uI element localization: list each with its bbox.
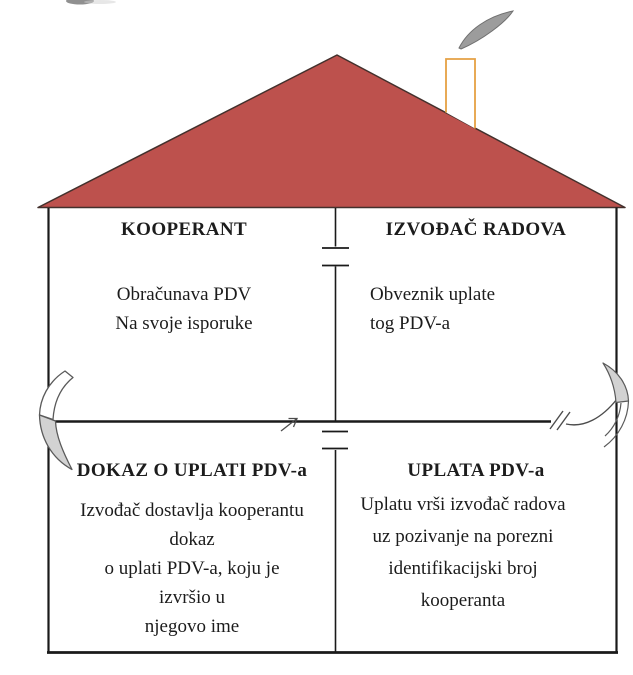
uplata-pdv-line: kooperanta bbox=[336, 585, 590, 617]
roof-icon bbox=[38, 55, 625, 208]
izvodac-radova-line: tog PDV-a bbox=[370, 309, 616, 338]
dokaz-o-uplati-line: dokaz bbox=[49, 525, 335, 554]
izvodac-radova-header: IZVOĐAČ RADOVA bbox=[336, 217, 616, 242]
uplata-pdv-line: identifikacijski broj bbox=[336, 553, 590, 585]
kooperant-header: KOOPERANT bbox=[49, 217, 319, 242]
dokaz-o-uplati-line: njegovo ime bbox=[49, 612, 335, 641]
uplata-pdv-line: Uplatu vrši izvođač radova bbox=[336, 489, 590, 521]
quadrant-kooperant: KOOPERANT Obračunava PDV Na svoje isporu… bbox=[49, 208, 335, 421]
smoke-icon bbox=[459, 11, 513, 49]
dokaz-o-uplati-line: Izvođač dostavlja kooperantu bbox=[49, 496, 335, 525]
dokaz-o-uplati-header: DOKAZ O UPLATI PDV-a bbox=[49, 458, 335, 483]
house-diagram: KOOPERANT Obračunava PDV Na svoje isporu… bbox=[0, 0, 633, 675]
kooperant-line: Na svoje isporuke bbox=[49, 309, 319, 338]
izvodac-radova-line: Obveznik uplate bbox=[370, 280, 616, 309]
quadrant-izvodac-radova: IZVOĐAČ RADOVA Obveznik uplate tog PDV-a bbox=[336, 208, 616, 421]
dokaz-o-uplati-line: izvršio u bbox=[49, 583, 335, 612]
dokaz-o-uplati-line: o uplati PDV-a, koju je bbox=[49, 554, 335, 583]
quadrant-dokaz-o-uplati: DOKAZ O UPLATI PDV-a Izvođač dostavlja k… bbox=[49, 421, 335, 652]
uplata-pdv-line: uz pozivanje na porezni bbox=[336, 521, 590, 553]
quadrant-uplata-pdv: UPLATA PDV-a Uplatu vrši izvođač radova … bbox=[336, 421, 616, 652]
top-smudge bbox=[66, 0, 116, 5]
kooperant-line: Obračunava PDV bbox=[49, 280, 319, 309]
uplata-pdv-header: UPLATA PDV-a bbox=[336, 458, 616, 483]
